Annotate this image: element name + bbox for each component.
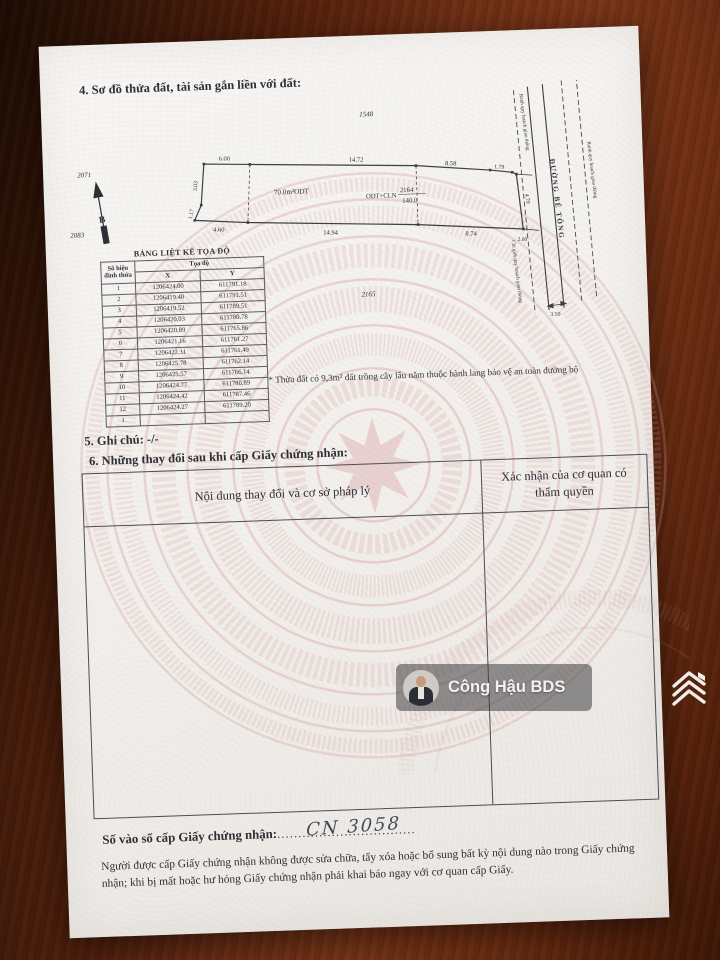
avatar	[403, 670, 439, 706]
avatar-shirt	[418, 687, 424, 699]
parcel-outline	[193, 153, 523, 240]
svg-text:8.58: 8.58	[445, 160, 457, 167]
svg-text:Ranh quy hoạch giao thông: Ranh quy hoạch giao thông	[585, 141, 598, 199]
changes-col-right-header: Xác nhận của cơ quan có thẩm quyền	[480, 455, 648, 513]
svg-text:2071: 2071	[77, 171, 91, 179]
changes-table: Nội dung thay đổi và cơ sở pháp lý Xác n…	[82, 454, 660, 820]
svg-text:3.50: 3.50	[550, 312, 560, 318]
watermark-bar: Công Hậu BDS	[396, 664, 592, 711]
svg-text:14.72: 14.72	[349, 157, 364, 164]
svg-text:6.00: 6.00	[219, 155, 230, 162]
svg-text:14.94: 14.94	[323, 229, 338, 236]
certificate-page: 4. Sơ đồ thửa đất, tài sản gắn liền với …	[39, 26, 670, 938]
coordinate-table: BẢNG LIỆT KÊ TỌA ĐỘ Số hiệu đỉnh thửa Tọ…	[100, 245, 270, 428]
svg-text:70.0m²ODT: 70.0m²ODT	[274, 187, 310, 196]
certificate-warning-text: Người được cấp Giấy chứng nhận không đượ…	[101, 840, 662, 894]
north-arrow: B	[92, 182, 111, 244]
watermark-name: Công Hậu BDS	[448, 678, 565, 697]
svg-text:ODT+CLN: ODT+CLN	[366, 192, 397, 200]
svg-text:B: B	[98, 215, 107, 226]
svg-text:1.79: 1.79	[494, 164, 504, 170]
section5-note: 5. Ghi chú: -/-	[84, 432, 159, 450]
parcel-label: ODT+CLN 2164 140.0	[366, 186, 427, 206]
svg-text:1548: 1548	[359, 110, 374, 119]
svg-text:2165: 2165	[361, 290, 376, 299]
svg-text:ĐƯỜNG BÊ TÔNG: ĐƯỜNG BÊ TÔNG	[548, 158, 568, 240]
road-width-dimension	[548, 301, 566, 308]
registry-label: Số vào sổ cấp Giấy chứng nhận:	[102, 827, 277, 847]
svg-text:140.0: 140.0	[402, 197, 418, 205]
col-header-point-id: Số hiệu đỉnh thửa	[101, 261, 136, 284]
avatar-head	[416, 676, 426, 687]
photo-of-land-certificate: 4. Sơ đồ thửa đất, tài sản gắn liền với …	[0, 0, 720, 960]
svg-text:1.17: 1.17	[188, 209, 196, 220]
svg-text:2.00: 2.00	[517, 237, 527, 243]
svg-text:Chỉ giới quy hoạch giao thông: Chỉ giới quy hoạch giao thông	[510, 240, 524, 304]
svg-text:2164: 2164	[400, 187, 414, 194]
changes-col-left-header: Nội dung thay đổi và cơ sở pháp lý	[83, 461, 483, 527]
svg-text:4.60: 4.60	[213, 226, 224, 233]
layers-icon	[666, 664, 712, 714]
svg-text:8.74: 8.74	[465, 231, 477, 238]
svg-text:3.03: 3.03	[193, 181, 200, 192]
svg-text:2083: 2083	[70, 231, 85, 240]
